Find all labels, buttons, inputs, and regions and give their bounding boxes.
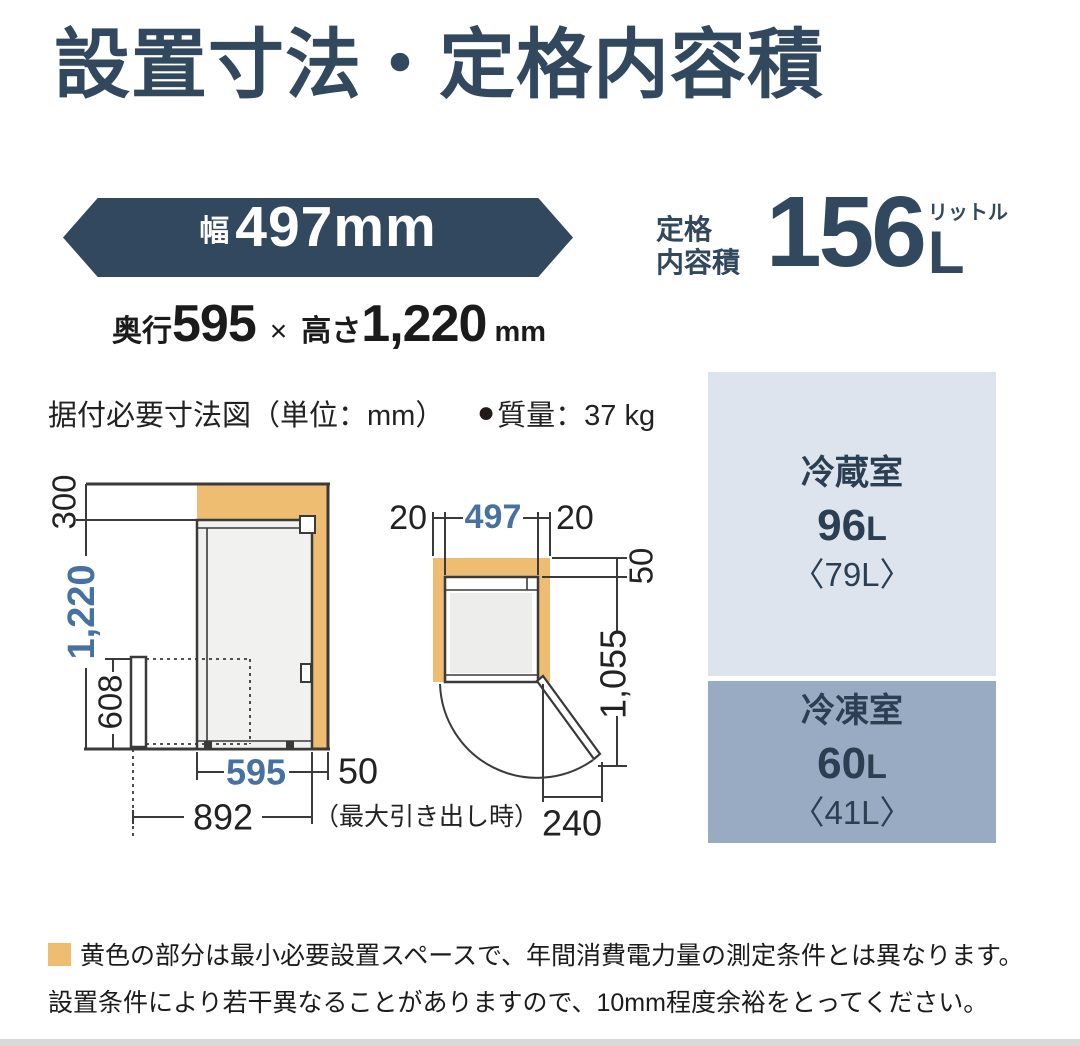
dim-rear-clearance-top: 50: [623, 548, 660, 585]
bullet-icon: ●: [477, 396, 495, 430]
rear-spacer-mid: [301, 664, 311, 682]
mass-label: 質量：37 kg: [497, 392, 655, 434]
footnote-line1-text: 黄色の部分は最小必要設置スペースで、年間消費電力量の測定条件とは異なります。: [80, 942, 1024, 970]
dim-height: 1,220: [61, 564, 103, 659]
drawer-front-extended: [131, 657, 146, 747]
fridge-compartment-alt-capacity: 〈79L〉: [791, 554, 912, 597]
side-clearance-zone: [197, 484, 328, 749]
dim-left-clearance: 20: [389, 499, 427, 537]
capacity-label-line2: 内容積: [656, 246, 740, 279]
door-open: [537, 676, 600, 759]
capacity-unit-column: リットル L: [928, 196, 1008, 278]
dim-max-depth: 892: [193, 797, 253, 838]
freezer-capacity-value: 60: [817, 739, 866, 788]
yellow-legend-icon: [48, 943, 71, 966]
front-foot: [204, 741, 212, 749]
height-value: 1,220: [361, 294, 486, 354]
freezer-capacity-unit: L: [866, 748, 887, 786]
depth-height-dimensions: 奥行 595 × 高さ 1,220 mm: [112, 294, 546, 354]
fridge-capacity-value: 96: [817, 501, 866, 550]
height-label: 高さ: [301, 306, 361, 350]
freezer-compartment-capacity: 60L: [817, 735, 887, 792]
top-clearance-zone: [433, 558, 550, 682]
rear-foot: [286, 741, 294, 749]
footnote: 黄色の部分は最小必要設置スペースで、年間消費電力量の測定条件とは異なります。 設…: [48, 933, 1048, 1027]
times-sign: ×: [270, 315, 288, 349]
freezer-compartment-box: 冷凍室 60L 〈41L〉: [708, 681, 996, 843]
width-banner-value: 497mm: [235, 194, 436, 260]
freezer-compartment-alt-capacity: 〈41L〉: [791, 792, 912, 835]
footnote-line2: 設置条件により若干異なることがありますので、10mm程度余裕をとってください。: [48, 980, 1048, 1027]
capacity-label: 定格 内容積: [656, 213, 740, 279]
dim-max-depth-note: （最大引き出し時）: [314, 803, 539, 831]
fridge-capacity-unit: L: [866, 510, 887, 548]
door-swing-arc: [440, 684, 593, 778]
fridge-body-side: [197, 520, 312, 749]
top-view-diagram: 20 497 20 50 1,055 240: [389, 498, 659, 844]
footnote-line1: 黄色の部分は最小必要設置スペースで、年間消費電力量の測定条件とは異なります。: [48, 933, 1048, 980]
spec-sheet: 設置寸法・定格内容積 幅 497mm 奥行 595 × 高さ 1,220 mm …: [0, 0, 1080, 1046]
dim-top-clearance: 300: [46, 474, 83, 529]
fridge-compartment-capacity: 96L: [817, 497, 887, 554]
dim-width: 497: [465, 498, 522, 536]
installation-diagram-caption: 据付必要寸法図（単位：mm）: [48, 392, 444, 434]
side-view-diagram: 300 1,220 608 595 50 892 （最大引き出し時）: [46, 474, 540, 838]
capacity-label-line1: 定格: [656, 213, 740, 246]
capacity-value: 156 リットル L: [766, 186, 1008, 278]
capacity-unit: L: [928, 227, 965, 278]
dim-rear-clearance-side: 50: [338, 751, 378, 792]
width-banner: 幅 497mm: [63, 198, 573, 277]
mass-note: ● 質量：37 kg: [477, 392, 655, 434]
width-banner-label: 幅: [199, 206, 229, 250]
depth-value: 595: [172, 294, 256, 354]
fridge-compartment-box: 冷蔵室 96L 〈79L〉: [708, 372, 996, 676]
fridge-compartment-name: 冷蔵室: [801, 451, 903, 497]
dim-drawer-height: 608: [92, 674, 129, 729]
dim-right-clearance: 20: [556, 499, 594, 537]
dim-door-open-depth: 1,055: [593, 629, 634, 719]
freezer-compartment-name: 冷凍室: [801, 689, 903, 735]
capacity-number: 156: [766, 186, 924, 278]
drawer-extended-outline: [133, 659, 250, 838]
rear-spacer-top: [300, 516, 315, 533]
depth-label: 奥行: [112, 306, 172, 350]
bottom-edge-strip: [0, 1039, 1080, 1046]
page-title: 設置寸法・定格内容積: [54, 24, 824, 108]
fridge-body-top: [445, 577, 538, 682]
dim-door-protrusion: 240: [542, 803, 602, 844]
dim-depth: 595: [226, 752, 286, 793]
dims-unit: mm: [494, 316, 546, 349]
